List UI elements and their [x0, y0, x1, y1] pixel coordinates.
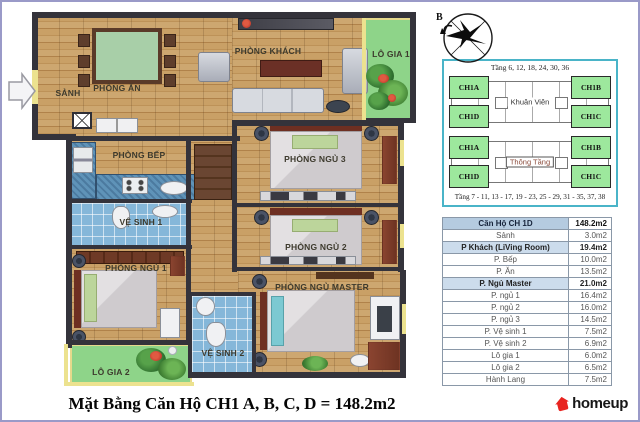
- wall: [70, 245, 192, 249]
- dining-chair-icon: [78, 74, 90, 87]
- shaft-box-icon: [72, 112, 92, 129]
- plant-icon: [302, 356, 328, 371]
- wall: [410, 15, 416, 122]
- chair-icon: [350, 354, 370, 367]
- room-area: 7.5m2: [569, 374, 612, 386]
- unit-ch1d: CH1D: [449, 165, 489, 188]
- unit-ch1c: CH1C: [571, 105, 611, 128]
- homeup-logo[interactable]: homeup: [554, 395, 628, 412]
- room-label-sanh: SẢNH: [56, 89, 81, 98]
- table-row: P. Bếp10.0m2: [443, 254, 612, 266]
- window: [66, 382, 194, 386]
- flower-icon: [378, 74, 389, 83]
- room-area: 6.5m2: [569, 362, 612, 374]
- flower-icon: [388, 94, 396, 102]
- floor-strip-2: CH1A CH1B CH1D CH1C Thông Tầng: [449, 134, 611, 190]
- room-name: Căn Hộ CH 1D: [443, 218, 569, 230]
- room-name: Lô gia 2: [443, 362, 569, 374]
- room-area: 16.0m2: [569, 302, 612, 314]
- dresser-icon: [368, 342, 400, 370]
- nightstand-icon: [252, 274, 267, 289]
- wall: [70, 340, 192, 345]
- wall: [188, 372, 238, 378]
- dresser-icon: [382, 136, 397, 184]
- nightstand-icon: [364, 210, 379, 225]
- table-row: Căn Hộ CH 1D148.2m2: [443, 218, 612, 230]
- nightstand-icon: [364, 126, 379, 141]
- location-diagram: Tầng 6, 12, 18, 24, 30, 36 CH1A CH1B CH1…: [442, 59, 618, 207]
- bed-headboard-icon: [270, 208, 362, 215]
- armchair-icon: [198, 52, 230, 82]
- unit-ch1d: CH1D: [449, 105, 489, 128]
- unit-ch1b: CH1B: [571, 76, 611, 99]
- monitor-icon: [377, 306, 392, 332]
- room-name: P. Ngủ Master: [443, 278, 569, 290]
- table-row: Sảnh3.0m2: [443, 230, 612, 242]
- location-diagram-bottom-floors: Tầng 7 - 11, 13 - 17, 19 - 23, 25 - 29, …: [444, 193, 616, 201]
- room-area: 6.9m2: [569, 338, 612, 350]
- room-label-phong-ngu-1: PHÒNG NGỦ 1: [105, 264, 167, 273]
- room-name: Lô gia 1: [443, 350, 569, 362]
- plant-icon: [158, 358, 186, 380]
- room-area: 14.5m2: [569, 314, 612, 326]
- desk-icon: [160, 308, 180, 338]
- flower-icon: [150, 351, 162, 361]
- room-label-lo-gia-2: LÔ GIA 2: [92, 368, 130, 377]
- page-title: Mặt Bằng Căn Hộ CH1 A, B, C, D = 148.2m2: [22, 394, 442, 414]
- bed-headboard-icon: [74, 270, 81, 328]
- page: SẢNH PHÒNG ĂN PHÒNG KHÁCH LÔ GIA 1 PHÒNG…: [0, 0, 640, 422]
- dining-chair-icon: [164, 74, 176, 87]
- wall: [188, 292, 192, 378]
- dining-chair-icon: [164, 34, 176, 47]
- pillow-icon: [292, 219, 338, 232]
- unit-ch1a: CH1A: [449, 136, 489, 159]
- room-area: 10.0m2: [569, 254, 612, 266]
- coffee-table-icon: [326, 100, 350, 113]
- wall: [232, 120, 237, 272]
- sink-oval-icon: [160, 181, 188, 195]
- room-name: P. ngủ 2: [443, 302, 569, 314]
- room-area: 16.4m2: [569, 290, 612, 302]
- bath-sink-icon: [196, 297, 215, 316]
- pillow-icon: [292, 135, 338, 149]
- table-row: Lô gia 16.0m2: [443, 350, 612, 362]
- wall: [66, 136, 72, 348]
- room-label-phong-ngu-master: PHÒNG NGỦ MASTER: [275, 283, 369, 292]
- rug-icon: [260, 60, 322, 77]
- room-area: 13.5m2: [569, 266, 612, 278]
- room-area: 3.0m2: [569, 230, 612, 242]
- room-area: 148.2m2: [569, 218, 612, 230]
- wall: [235, 203, 402, 207]
- flower-pot-icon: [242, 19, 251, 28]
- table-row: P. Ăn13.5m2: [443, 266, 612, 278]
- core-box: [555, 157, 568, 169]
- room-name: P. ngủ 1: [443, 290, 569, 302]
- room-name: Hành Lang: [443, 374, 569, 386]
- table-row: Lô gia 26.5m2: [443, 362, 612, 374]
- plant-icon: [368, 92, 390, 110]
- dining-chair-icon: [78, 34, 90, 47]
- room-name: P. ngủ 3: [443, 314, 569, 326]
- nightstand-icon: [254, 126, 269, 141]
- shelf-icon: [316, 272, 374, 279]
- table-row: P. Vệ sinh 17.5m2: [443, 326, 612, 338]
- dresser-icon: [382, 220, 397, 264]
- tv-console-icon: [260, 191, 356, 201]
- room-name: P. Bếp: [443, 254, 569, 266]
- table-row: P. ngủ 216.0m2: [443, 302, 612, 314]
- wall: [252, 292, 256, 378]
- wall: [234, 372, 406, 378]
- wall: [70, 136, 240, 141]
- homeup-logo-icon: [554, 395, 570, 412]
- sofa-icon: [232, 88, 324, 113]
- room-name: P. Vệ sinh 1: [443, 326, 569, 338]
- room-label-phong-ngu-2: PHÒNG NGỦ 2: [285, 243, 347, 252]
- room-label-phong-an: PHÒNG ĂN: [93, 84, 140, 93]
- stove-icon: [122, 177, 148, 194]
- core-box: [495, 97, 508, 109]
- nightstand-icon: [254, 210, 269, 225]
- kitchen-sink-icon: [73, 147, 93, 173]
- table-row: P. Ngủ Master21.0m2: [443, 278, 612, 290]
- pillow-icon: [271, 296, 284, 346]
- core-box: [555, 97, 568, 109]
- window: [400, 224, 404, 248]
- window: [362, 18, 366, 120]
- room-name: P. Ăn: [443, 266, 569, 278]
- wall: [235, 267, 402, 271]
- dresser-icon: [170, 256, 185, 276]
- floor-strip-1: CH1A CH1B CH1D CH1C Khuân Viên: [449, 74, 611, 130]
- floor-plan: SẢNH PHÒNG ĂN PHÒNG KHÁCH LÔ GIA 1 PHÒNG…: [20, 8, 436, 394]
- table-row: P Khách (LiVing Room)19.4m2: [443, 242, 612, 254]
- room-label-lo-gia-1: LÔ GIA 1: [372, 50, 410, 59]
- room-label-phong-ngu-3: PHÒNG NGỦ 3: [284, 155, 346, 164]
- bed-headboard-icon: [260, 292, 267, 350]
- wall: [364, 118, 416, 123]
- unit-ch1b: CH1B: [571, 136, 611, 159]
- wardrobe-icon: [194, 144, 232, 200]
- room-area: 7.5m2: [569, 326, 612, 338]
- entrance-arrow-icon: [8, 72, 36, 110]
- wall: [70, 199, 192, 203]
- wall: [32, 12, 416, 18]
- wall: [188, 292, 256, 296]
- unit-ch1a: CH1A: [449, 76, 489, 99]
- tv-console-icon: [260, 256, 356, 265]
- kitchen-cabinet-icon: [96, 118, 138, 133]
- room-label-ve-sinh-1: VỆ SINH 1: [120, 218, 163, 227]
- area-table: Căn Hộ CH 1D148.2m2 Sảnh3.0m2 P Khách (L…: [442, 217, 612, 386]
- window: [400, 140, 404, 166]
- nightstand-icon: [72, 254, 86, 268]
- room-name: P Khách (LiVing Room): [443, 242, 569, 254]
- table-row: Hành Lang7.5m2: [443, 374, 612, 386]
- dining-chair-icon: [78, 55, 90, 68]
- svg-text:B: B: [436, 12, 443, 23]
- table-row: P. ngủ 116.4m2: [443, 290, 612, 302]
- window: [64, 344, 68, 386]
- toilet-icon: [206, 322, 226, 347]
- room-name: P. Vệ sinh 2: [443, 338, 569, 350]
- center-label-thong-tang: Thông Tầng: [506, 157, 554, 168]
- room-label-phong-bep: PHÒNG BẾP: [113, 151, 166, 160]
- unit-ch1c: CH1C: [571, 165, 611, 188]
- dining-table-icon: [92, 28, 162, 84]
- room-area: 19.4m2: [569, 242, 612, 254]
- room-area: 6.0m2: [569, 350, 612, 362]
- window: [402, 304, 406, 334]
- room-name: Sảnh: [443, 230, 569, 242]
- tv-cabinet-icon: [238, 18, 334, 30]
- room-area: 21.0m2: [569, 278, 612, 290]
- table-row: P. Vệ sinh 26.9m2: [443, 338, 612, 350]
- homeup-logo-text: homeup: [572, 395, 628, 412]
- compass-icon: B: [430, 6, 500, 68]
- room-label-ve-sinh-2: VỆ SINH 2: [202, 349, 245, 358]
- pillow-icon: [84, 274, 97, 322]
- dining-chair-icon: [164, 55, 176, 68]
- table-row: P. ngủ 314.5m2: [443, 314, 612, 326]
- center-label-khuan-vien: Khuân Viên: [508, 98, 553, 107]
- flower-icon: [168, 346, 177, 355]
- room-label-phong-khach: PHÒNG KHÁCH: [235, 47, 301, 56]
